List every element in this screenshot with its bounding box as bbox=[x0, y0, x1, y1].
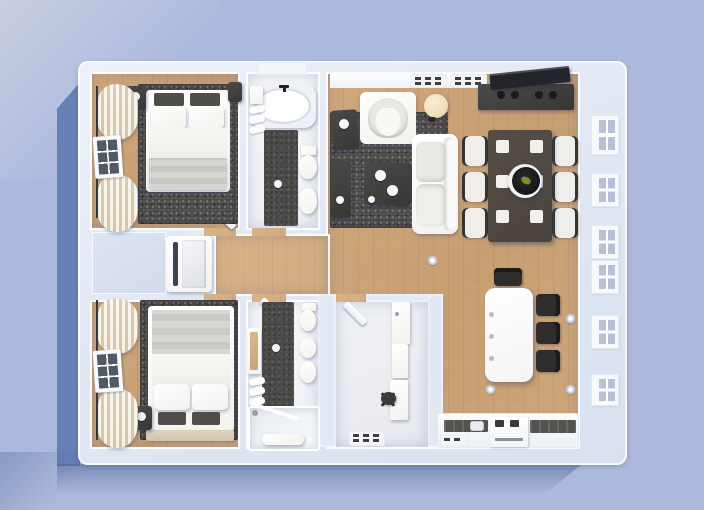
bathroom-1-window[interactable] bbox=[258, 63, 306, 74]
oven-handle bbox=[495, 438, 523, 441]
bar-stool-right-3[interactable] bbox=[536, 350, 560, 372]
building-shadow-bottom bbox=[57, 464, 582, 494]
bed-1-dark-pillow-right bbox=[190, 93, 220, 106]
window-panes bbox=[599, 379, 615, 401]
window-right-6[interactable] bbox=[592, 375, 618, 405]
vent-slats bbox=[415, 82, 443, 85]
placemat bbox=[530, 210, 543, 223]
tv-console-speaker bbox=[549, 91, 557, 99]
bidet-1[interactable] bbox=[299, 188, 317, 214]
bathroom-2-sink[interactable] bbox=[300, 338, 316, 358]
floorplan-canvas bbox=[0, 0, 704, 510]
floor-lamp[interactable] bbox=[424, 94, 448, 118]
office-chair[interactable] bbox=[381, 392, 396, 405]
bedroom-1-window[interactable] bbox=[93, 135, 124, 179]
bathroom-1-drain-light bbox=[274, 180, 282, 188]
dining-chair-left-2[interactable] bbox=[462, 172, 488, 202]
window-panes bbox=[97, 353, 119, 388]
office-radiator bbox=[350, 432, 384, 445]
island-handle bbox=[489, 312, 494, 317]
doorway-bathroom-1 bbox=[252, 228, 286, 236]
toilet-1[interactable] bbox=[299, 155, 317, 179]
bed-2-blanket bbox=[152, 310, 230, 356]
window-right-5[interactable] bbox=[592, 316, 618, 348]
window-panes bbox=[97, 139, 119, 174]
bed-1-dark-pillow-left bbox=[154, 93, 184, 106]
floor-downlight bbox=[486, 385, 495, 394]
vent-slats bbox=[353, 434, 381, 437]
bed-1-blanket bbox=[149, 158, 227, 190]
dining-chair-right-3[interactable] bbox=[552, 208, 578, 238]
vent-slats bbox=[444, 438, 464, 441]
dining-chair-left-1[interactable] bbox=[462, 136, 488, 166]
vent-slats bbox=[415, 77, 443, 80]
placemat bbox=[496, 140, 509, 153]
nightstand-2-lamp bbox=[137, 412, 146, 421]
toilet-2[interactable] bbox=[300, 310, 316, 331]
bedroom-2-curtain-bottom[interactable] bbox=[98, 388, 138, 448]
armchair-seat bbox=[376, 108, 400, 136]
building-shadow-corner bbox=[0, 452, 80, 510]
console-marble-top bbox=[182, 240, 206, 288]
island-handle bbox=[489, 356, 494, 361]
console-bench[interactable] bbox=[331, 160, 351, 218]
bench-dish bbox=[336, 196, 344, 204]
towel bbox=[248, 114, 265, 124]
console-handle-bar bbox=[173, 242, 178, 286]
bathtub-faucet-stem bbox=[283, 85, 286, 92]
window-right-4[interactable] bbox=[592, 261, 618, 293]
kitchen-vent bbox=[441, 436, 467, 445]
window-panes bbox=[599, 320, 615, 344]
room-office-floor[interactable] bbox=[336, 302, 428, 447]
bathroom-1-shelf[interactable] bbox=[250, 86, 263, 104]
window-right-1[interactable] bbox=[592, 116, 618, 154]
coffee-table-plate-3 bbox=[368, 196, 375, 203]
floor-downlight bbox=[428, 256, 437, 265]
bedroom-1-nightstand-right[interactable] bbox=[228, 82, 242, 102]
bedroom-1-curtain-top[interactable] bbox=[98, 84, 138, 140]
kitchen-sink[interactable] bbox=[470, 421, 484, 431]
bed-2-pillow-right bbox=[192, 384, 228, 410]
sofa-cushion-bottom bbox=[416, 184, 446, 226]
island-handle bbox=[489, 334, 494, 339]
office-cabinet-tall[interactable] bbox=[392, 302, 410, 344]
window-right-2[interactable] bbox=[592, 174, 618, 206]
cabinet-handle bbox=[395, 312, 399, 316]
side-table[interactable] bbox=[331, 109, 360, 151]
bed-2-duvet bbox=[152, 354, 230, 386]
bed-2-dark-pillow-left bbox=[158, 412, 186, 425]
dining-chair-left-3[interactable] bbox=[462, 208, 488, 238]
placemat bbox=[496, 210, 509, 223]
tv-console-speaker bbox=[511, 91, 519, 99]
bathroom-2-drain-light bbox=[272, 344, 280, 352]
bed-2-pillow-left bbox=[154, 384, 190, 410]
bedroom-2-curtain-top[interactable] bbox=[98, 298, 138, 354]
window-panes bbox=[599, 230, 615, 254]
window-right-3[interactable] bbox=[592, 226, 618, 258]
tv-console-speaker bbox=[497, 91, 505, 99]
bed-2-dark-pillow-right bbox=[192, 412, 220, 425]
towel bbox=[248, 386, 265, 396]
floor-vent-left bbox=[412, 75, 446, 87]
placemat bbox=[530, 140, 543, 153]
bidet-2[interactable] bbox=[300, 361, 316, 383]
floor-downlight bbox=[566, 314, 575, 323]
floor-lamp-base bbox=[428, 117, 436, 122]
bed-1-pillow-right bbox=[189, 106, 224, 129]
floor-downlight bbox=[566, 385, 575, 394]
side-table-dish bbox=[339, 119, 349, 129]
coffee-table-plate-1 bbox=[375, 170, 386, 181]
bar-stool-right-2[interactable] bbox=[536, 322, 560, 344]
building-shadow-left bbox=[57, 82, 80, 466]
dining-chair-right-1[interactable] bbox=[552, 136, 578, 166]
office-cabinet[interactable] bbox=[392, 344, 408, 378]
window-panes bbox=[599, 178, 615, 202]
bathroom-1-mat[interactable] bbox=[264, 130, 298, 226]
bedroom-2-window[interactable] bbox=[93, 349, 124, 393]
vent-slats bbox=[455, 77, 483, 80]
towel bbox=[248, 104, 265, 114]
toilet-1-tank bbox=[301, 146, 316, 155]
bed-2-foot-bench[interactable] bbox=[146, 430, 234, 441]
cooktop-grate bbox=[510, 420, 519, 427]
coffee-table-plate-2 bbox=[387, 185, 398, 196]
hallway-wardrobe[interactable] bbox=[92, 232, 166, 294]
bed-1-duvet bbox=[149, 128, 227, 160]
room-hallway-floor[interactable] bbox=[216, 236, 328, 294]
towel bbox=[248, 124, 265, 134]
shower-tray bbox=[262, 434, 304, 445]
bar-stool-right-1[interactable] bbox=[536, 294, 560, 316]
towel bbox=[248, 376, 265, 386]
bedroom-1-curtain-bottom[interactable] bbox=[98, 174, 138, 232]
bed-1-pillow-left bbox=[151, 106, 186, 129]
tv-console-speaker bbox=[535, 91, 543, 99]
window-panes bbox=[599, 265, 615, 289]
doorway-office bbox=[336, 294, 366, 302]
vanity-mirror bbox=[250, 332, 258, 370]
sofa-cushion-top bbox=[416, 142, 446, 182]
cooktop-grate bbox=[495, 420, 504, 427]
wall-bath2-office bbox=[318, 294, 336, 447]
shower-head bbox=[252, 410, 258, 416]
countertop-right bbox=[530, 420, 576, 433]
bar-stool-top[interactable] bbox=[494, 268, 522, 286]
dining-chair-right-2[interactable] bbox=[552, 172, 578, 202]
window-panes bbox=[599, 120, 615, 150]
vent-slats bbox=[353, 439, 381, 442]
